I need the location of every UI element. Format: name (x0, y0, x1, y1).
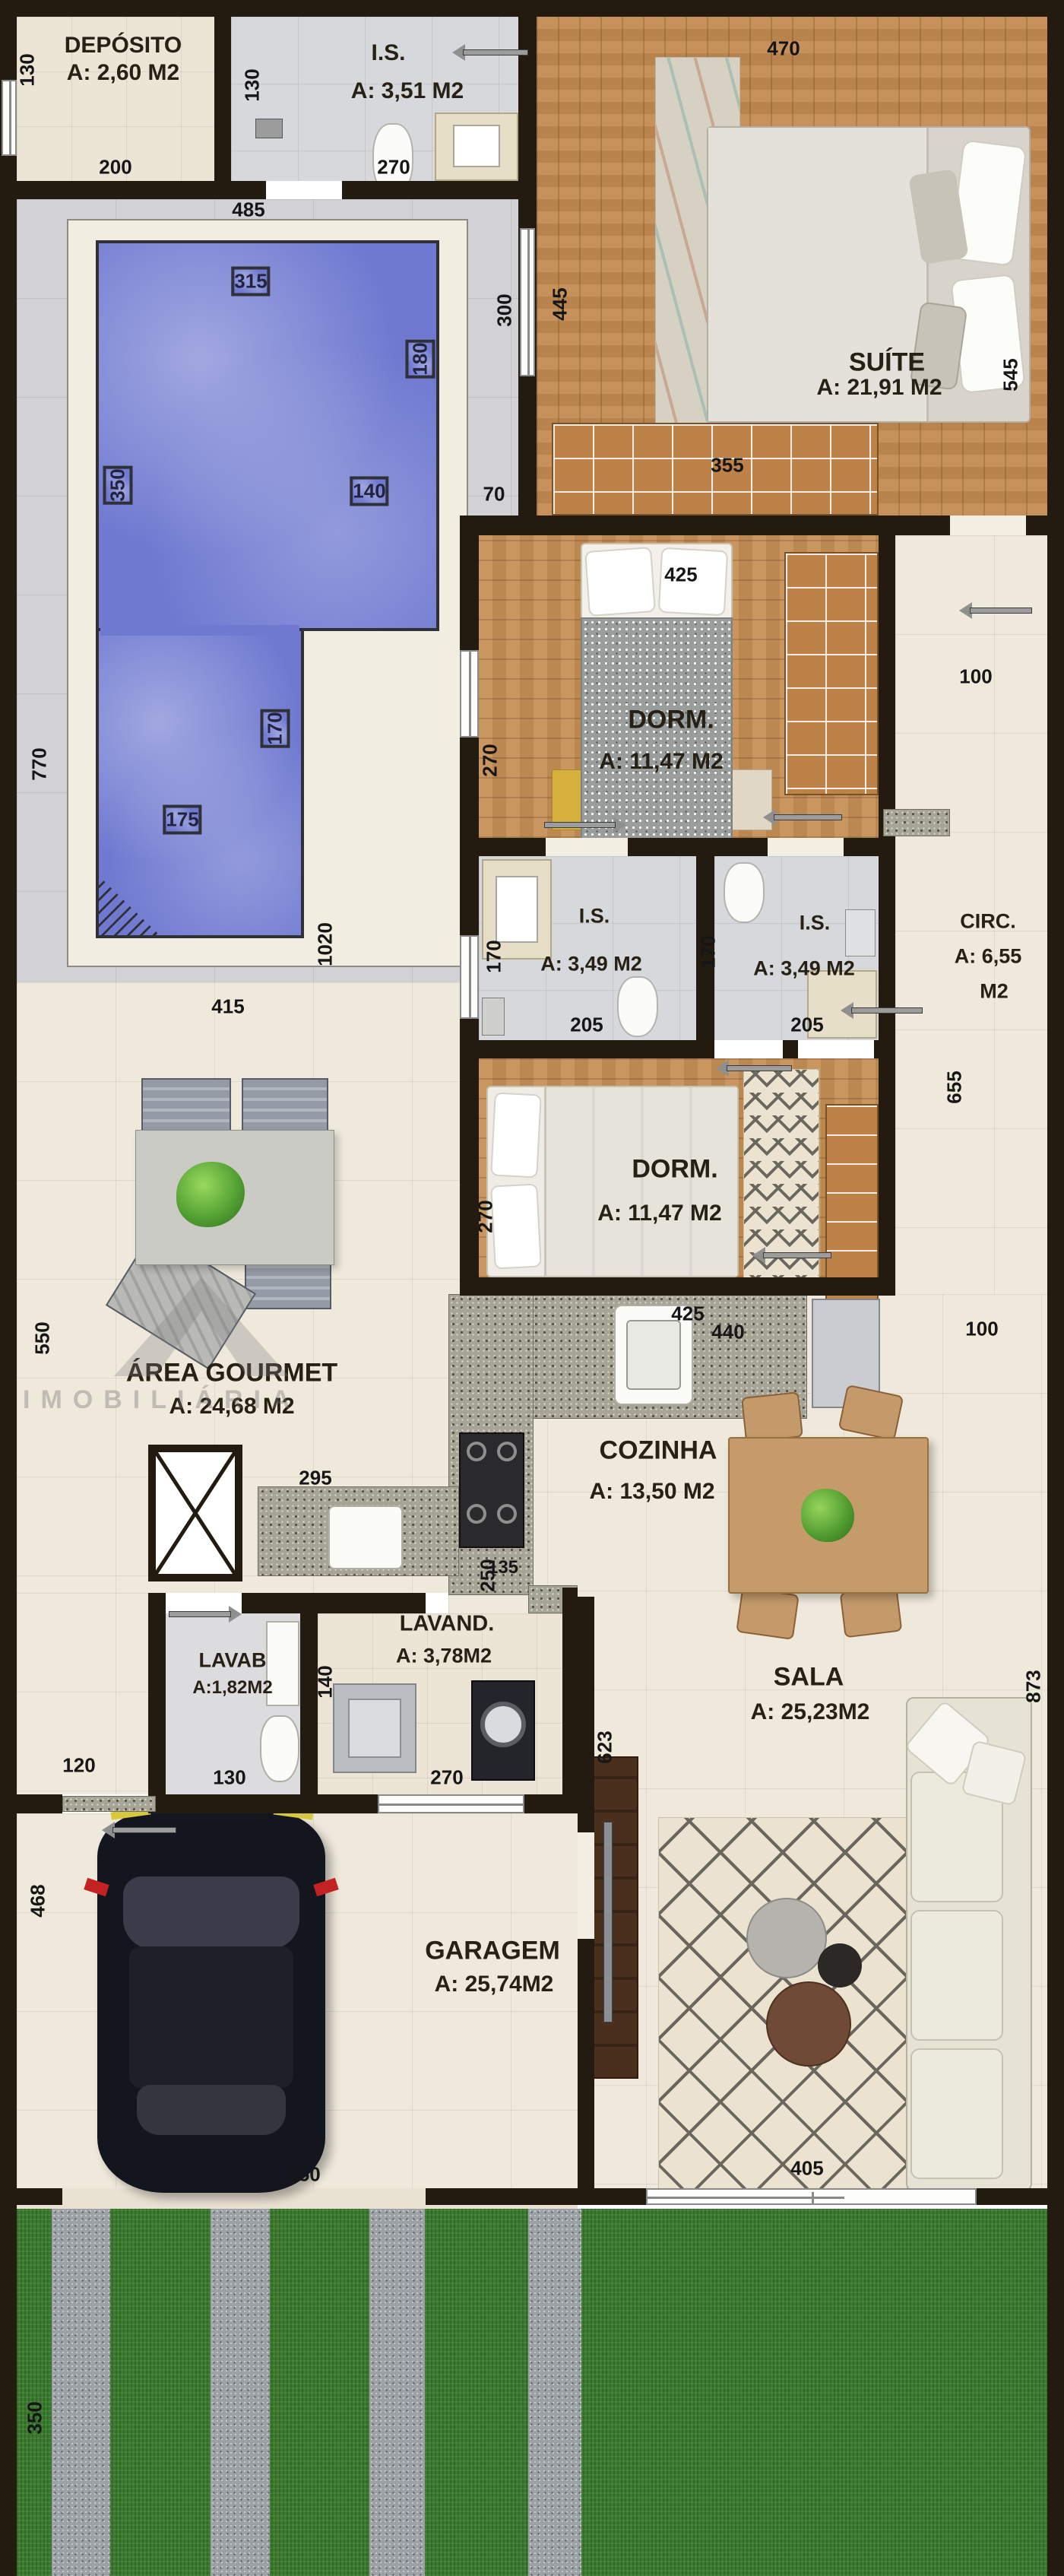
dorm2-pillow (490, 1183, 542, 1269)
coffee-table-brown (766, 1981, 851, 2067)
pool-upper (96, 240, 439, 631)
dorm2-pillow (490, 1092, 542, 1178)
wall-deposito-right (214, 17, 231, 182)
dim-is2-height: 170 (697, 935, 720, 968)
gourmet-chair (245, 1261, 331, 1309)
porch-threshold (62, 1796, 156, 1812)
dim-wall-jog: 70 (483, 483, 505, 506)
dim-cozinha-right: 100 (965, 1318, 998, 1341)
dim-kitchen-door: 135 (488, 1557, 518, 1578)
dim-pool-left: 350 (103, 465, 133, 504)
dim-pool-bottom: 175 (163, 805, 201, 835)
circ-label: CIRC. (960, 910, 1016, 934)
dim-pool-arm: 170 (261, 709, 290, 747)
dorm1-door-gap (768, 838, 844, 856)
washing-machine-drum (480, 1702, 526, 1747)
gourmet-chair (242, 1078, 328, 1131)
dim-counter: 440 (711, 1321, 744, 1344)
car-rear-window (137, 2085, 286, 2135)
dim-sala-door: 405 (790, 2157, 823, 2181)
sala-area: A: 25,23M2 (751, 1699, 870, 1725)
entry-door-gap (578, 1832, 594, 1939)
dim-dorm1-height: 270 (479, 744, 502, 776)
floor-plan: DEPÓSITO A: 2,60 M2 I.S. A: 3,51 M2 SUÍT… (0, 0, 1064, 2576)
wall-laundry-bottom-b (524, 1794, 578, 1813)
is2-toilet (724, 862, 765, 923)
wall-is-bottom-a (460, 1040, 714, 1058)
laundry-tank-basin (348, 1699, 401, 1758)
is2-sink (845, 909, 876, 956)
pool-seam-cover (100, 625, 299, 636)
is1-toilet (617, 976, 658, 1037)
lavand-area: A: 3,78M2 (396, 1645, 492, 1668)
door-arrow-lavab (169, 1606, 242, 1623)
dim-gourmet-left: 550 (31, 1321, 55, 1354)
dim-lavab-width: 130 (213, 1766, 245, 1790)
dorm1-area: A: 11,47 M2 (599, 749, 723, 775)
dim-circ-top: 100 (959, 665, 992, 689)
door-arrow-porch (102, 1822, 176, 1838)
is-top-area: A: 3,51 M2 (351, 78, 464, 104)
dim-front-yard: 350 (24, 2401, 47, 2434)
dim-dorm2-width: 425 (671, 1302, 704, 1326)
dim-dorm2-height: 270 (474, 1200, 498, 1232)
dim-suite-window: 300 (493, 293, 517, 326)
is1-sink (482, 998, 505, 1036)
lavab-toilet (260, 1715, 299, 1782)
gourmet-sink (328, 1505, 403, 1569)
sofa-cushion (910, 2048, 1003, 2179)
is2-area: A: 3,49 M2 (753, 957, 855, 981)
sala-label: SALA (774, 1663, 844, 1692)
wall-porch-bottom-a (17, 1794, 62, 1813)
dim-is-top-height: 130 (241, 68, 264, 101)
dim-pool-notch: 140 (350, 477, 388, 506)
dim-lavand-width: 270 (430, 1766, 463, 1790)
dim-garage-width: 550 (287, 2163, 320, 2187)
lavab-area: A:1,82M2 (192, 1677, 272, 1699)
wall-lavab-left (148, 1593, 166, 1813)
garagem-label: GARAGEM (425, 1937, 560, 1966)
is-top-shower-tray (453, 125, 500, 167)
dim-sala-left: 623 (594, 1731, 617, 1763)
deposito-window (2, 80, 17, 156)
is-top-accessory (255, 119, 283, 138)
suite-door-gap (950, 516, 1026, 535)
wall-lavab-divider (300, 1613, 318, 1813)
dorm2-area: A: 11,47 M2 (597, 1201, 721, 1226)
dorm1-pillow (584, 547, 656, 617)
gourmet-chair (141, 1078, 231, 1131)
dim-suite-width: 470 (767, 37, 800, 61)
is1-label: I.S. (579, 905, 610, 928)
dim-patio-right: 1020 (314, 922, 337, 966)
kitchen-sink-basin (626, 1320, 681, 1390)
dim-pool-top: 315 (231, 267, 270, 297)
lavand-label: LAVAND. (400, 1612, 495, 1637)
dim-suite-right: 545 (999, 358, 1023, 391)
suite-label: SUÍTE (849, 348, 925, 378)
is-top-label: I.S. (371, 40, 405, 66)
dim-lavand-height: 140 (314, 1665, 337, 1698)
dim-is1-height: 170 (483, 940, 506, 972)
dim-is-top-width: 270 (377, 156, 410, 179)
deposito-label: DEPÓSITO (65, 33, 182, 59)
dim-pool-right: 180 (406, 339, 435, 378)
door-arrow-suite (959, 602, 1032, 619)
door-arrow-is1 (544, 817, 626, 833)
dim-patio-left: 770 (28, 747, 52, 780)
is1-shower-tray (496, 876, 538, 943)
is1-window (460, 935, 479, 1019)
dim-suite-left: 445 (549, 287, 572, 320)
stove-burner (467, 1504, 486, 1524)
dim-deposito-width: 200 (99, 156, 131, 179)
dorm1-window (460, 650, 479, 738)
wall-garage-bottom-b (426, 2188, 578, 2205)
watermark-text: IMOBILIÁRIA (23, 1385, 301, 1415)
driveway-strip (528, 2209, 581, 2576)
wall-lavab-top-b (242, 1593, 426, 1613)
dining-plant (801, 1489, 854, 1542)
door-arrow-dorm2 (841, 1002, 923, 1019)
wall-garage-bottom-a (17, 2188, 62, 2205)
car-roof (129, 1946, 293, 2088)
lavab-label: LAVAB (199, 1649, 267, 1673)
shaft-x-icon (156, 1452, 235, 1574)
coffee-table-small (818, 1943, 862, 1988)
dorm2-label: DORM. (632, 1155, 717, 1185)
wall-top (0, 0, 1064, 17)
stove-burner (497, 1504, 517, 1524)
stove-burner (497, 1442, 517, 1461)
dim-deposito-height: 130 (16, 53, 40, 86)
suite-area: A: 21,91 M2 (816, 375, 942, 401)
door-arrow-is-top (452, 44, 528, 61)
tv-panel (591, 1756, 638, 2079)
wall-laundry-bottom-a (156, 1794, 378, 1813)
wall-circ-left (879, 535, 895, 1296)
sofa-cushion (910, 1910, 1003, 2041)
sala-sliding-door (646, 2188, 977, 2205)
wall-is-bottom-b (783, 1040, 798, 1058)
cozinha-area: A: 13,50 M2 (589, 1479, 714, 1505)
wall-left (0, 0, 17, 2576)
dining-chair (741, 1391, 803, 1443)
driveway-strip (52, 2209, 110, 2576)
dim-circ-height: 655 (943, 1071, 967, 1103)
wall-lavand-right (562, 1588, 578, 1813)
dim-dorm1-width: 425 (664, 563, 697, 587)
dim-porch-gate: 120 (62, 1754, 95, 1778)
wall-dorm2-bottom (460, 1277, 895, 1296)
wall-spine-lower (460, 525, 479, 1296)
deposito-area: A: 2,60 M2 (67, 60, 179, 86)
is1-area: A: 3,49 M2 (540, 953, 642, 976)
dim-suite-closet: 355 (711, 454, 743, 477)
laundry-window (378, 1794, 524, 1813)
dining-chair (736, 1587, 800, 1640)
dim-gourmet-counter: 295 (299, 1467, 331, 1490)
garagem-area: A: 25,74M2 (435, 1972, 554, 1997)
suite-patio-window (520, 228, 535, 376)
driveway-strip (211, 2209, 270, 2576)
wall-top-rooms-bottom-b (342, 181, 537, 199)
driveway-strip (369, 2209, 425, 2576)
is2-label: I.S. (800, 912, 831, 935)
is1-door-gap (546, 838, 628, 856)
wall-top-rooms-bottom-a (17, 181, 266, 199)
dim-sala-right: 873 (1022, 1670, 1046, 1702)
stove-burner (467, 1442, 486, 1461)
circ-area: A: 6,55 (955, 945, 1022, 969)
pool-lower (96, 628, 304, 938)
car-windshield (123, 1876, 299, 1949)
circ-threshold (883, 809, 950, 836)
dim-is1-width: 205 (570, 1014, 603, 1037)
circ-area-2: M2 (980, 980, 1009, 1004)
dim-patio-top: 485 (232, 198, 264, 222)
door-arrow-is2 (716, 1060, 792, 1077)
wall-right (1047, 0, 1064, 2576)
door-arrow-dorm1 (763, 809, 842, 826)
dorm1-label: DORM. (628, 706, 714, 735)
wall-is-bottom-c (874, 1040, 895, 1058)
door-arrow-circ (752, 1247, 831, 1264)
dim-garage-height: 468 (27, 1884, 50, 1917)
dorm1-closet (784, 552, 879, 795)
dim-gourmet-top: 415 (211, 995, 244, 1019)
cozinha-label: COZINHA (600, 1436, 717, 1466)
dim-is2-width: 205 (790, 1014, 823, 1037)
coffee-table-gray (746, 1898, 827, 1978)
tv-screen (603, 1822, 613, 2022)
